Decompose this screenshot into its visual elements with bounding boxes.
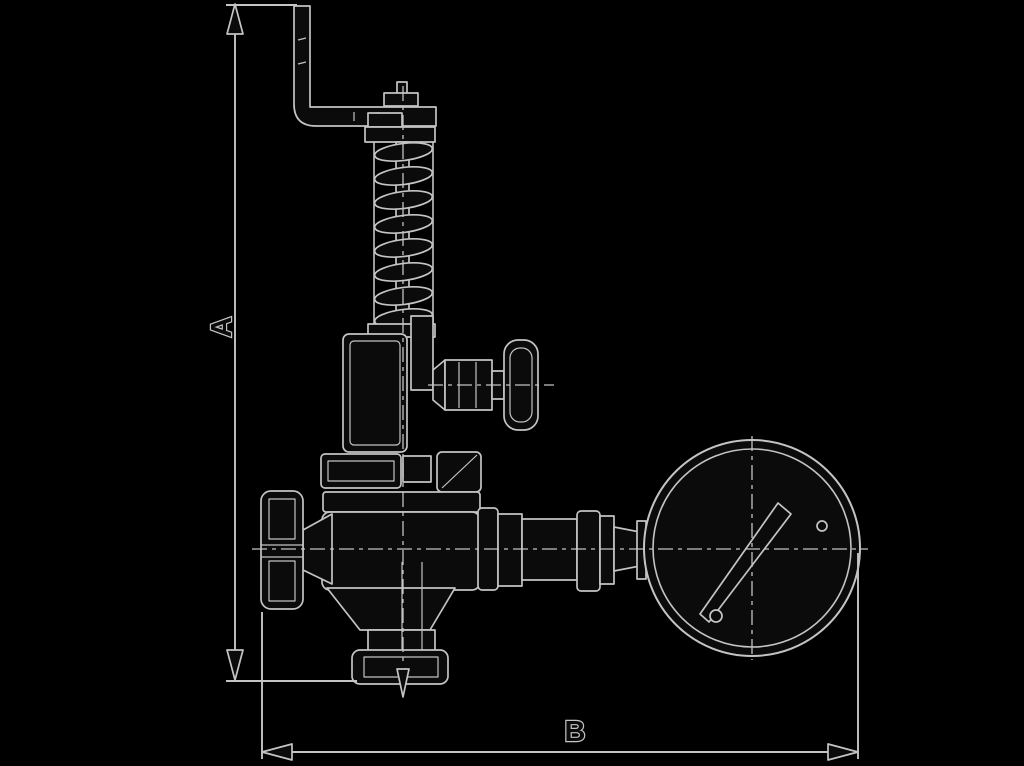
dim-b-label: B	[565, 716, 586, 748]
body-main	[322, 512, 480, 590]
spring-top-plate	[365, 127, 435, 142]
dim-a-arrow-up	[227, 4, 243, 34]
handwheel	[261, 491, 303, 609]
body-lower-cone	[327, 588, 455, 630]
lifting-lever-arm	[294, 6, 436, 126]
pipe-collar	[498, 514, 522, 586]
dim-b-arrow-right	[828, 744, 858, 760]
flange-left	[321, 454, 401, 488]
cap-body	[384, 93, 418, 106]
valve-assembly	[261, 6, 860, 684]
bonnet-flange	[321, 452, 481, 512]
valve-body	[303, 512, 480, 652]
handwheel-rim	[261, 491, 303, 609]
dim-a-arrow-down	[227, 650, 243, 680]
valve-technical-drawing: A B	[0, 0, 1024, 766]
diagram-stage: A B	[0, 0, 1024, 766]
pipe-collar	[600, 516, 614, 584]
dim-a-label: A	[206, 316, 238, 337]
pipe-union-nut	[577, 511, 600, 591]
gauge-peg	[710, 610, 722, 622]
lever-slot	[368, 113, 402, 127]
body-top-band	[323, 492, 480, 512]
gauge-peg	[817, 521, 827, 531]
spring-bonnet	[343, 316, 433, 452]
dim-b-arrow-left	[262, 744, 292, 760]
bonnet-tube	[343, 334, 407, 452]
flange-block	[403, 456, 431, 482]
bonnet-column	[411, 316, 433, 390]
spring-column	[368, 140, 435, 337]
